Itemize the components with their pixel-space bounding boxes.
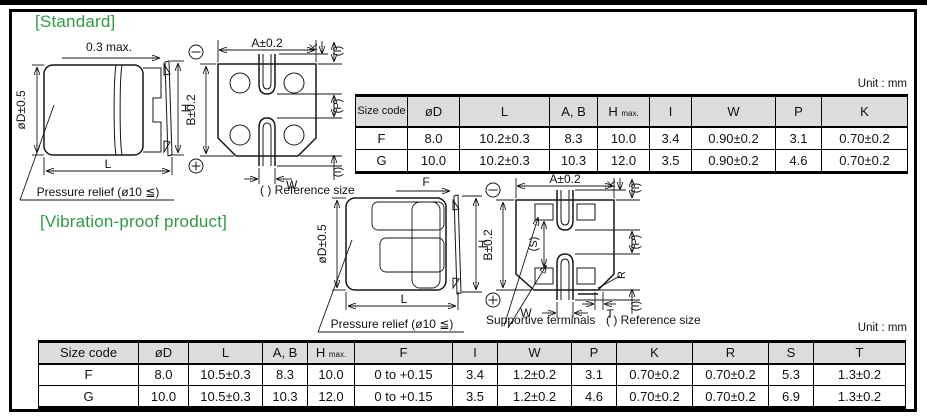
dim-label-p: (P) xyxy=(332,99,344,114)
hmax-main: H xyxy=(608,104,617,119)
col-header-t: T xyxy=(814,342,906,364)
cell: 0 to +0.15 xyxy=(355,364,453,386)
negative-polarity-icon xyxy=(189,45,203,59)
cell: 8.3 xyxy=(550,127,598,150)
cell: 0.90±0.2 xyxy=(692,150,776,173)
cell: F xyxy=(356,127,408,150)
cell: 10.0 xyxy=(139,386,189,408)
dim-a: A±0.2 xyxy=(516,172,614,198)
cell: 1.3±0.2 xyxy=(814,386,906,408)
cell: 0.70±0.2 xyxy=(693,386,769,408)
cell: 4.6 xyxy=(776,150,822,173)
dim-label-k: K xyxy=(308,43,320,51)
supportive-terminals-label: Supportive terminals xyxy=(486,313,595,327)
cell: 8.3 xyxy=(263,364,308,386)
dim-label-length: L xyxy=(401,292,408,306)
table-row: F 8.0 10.5±0.3 8.3 10.0 0 to +0.15 3.4 1… xyxy=(39,364,906,386)
bottom-terminal xyxy=(535,254,598,300)
cell: 3.5 xyxy=(650,150,692,173)
standard-dimension-table: Size code øD L A, B H max. I W P K F 8.0… xyxy=(355,94,908,174)
cell: 12.0 xyxy=(308,386,355,408)
col-header-s: S xyxy=(769,342,814,364)
col-header-k: K xyxy=(617,342,693,364)
dim-k: K xyxy=(575,178,626,190)
hmax-main: H xyxy=(316,345,325,360)
cell: 0.70±0.2 xyxy=(822,150,908,173)
table-header-row: Size code øD L A, B H max. I W P K xyxy=(356,96,908,127)
col-header-diameter: øD xyxy=(408,96,460,127)
dim-label-length: L xyxy=(105,157,112,171)
col-header-l: L xyxy=(189,342,263,364)
cell: 3.1 xyxy=(776,127,822,150)
cell: 0.70±0.2 xyxy=(617,364,693,386)
cell: 3.4 xyxy=(453,364,498,386)
pressure-relief-label: Pressure relief (ø10 ≦) xyxy=(331,317,454,331)
cell: 8.0 xyxy=(408,127,460,150)
col-header-hmax: H max. xyxy=(308,342,355,364)
dim-p: (P) xyxy=(575,230,642,254)
col-header-i: I xyxy=(453,342,498,364)
col-header-r: R xyxy=(693,342,769,364)
cell: 0.70±0.2 xyxy=(617,386,693,408)
dim-p: (P) xyxy=(277,94,344,118)
col-header-w: W xyxy=(692,96,776,127)
unit-label-vibration: Unit : mm xyxy=(812,322,907,334)
dim-label-i-bottom: (I) xyxy=(332,167,344,177)
col-header-ab: A, B xyxy=(550,96,598,127)
col-header-ab: A, B xyxy=(263,342,308,364)
table-row: G 10.0 10.2±0.3 10.3 12.0 3.5 0.90±0.2 4… xyxy=(356,150,908,173)
cell: 12.0 xyxy=(598,150,650,173)
cell: 0.70±0.2 xyxy=(822,127,908,150)
negative-polarity-icon xyxy=(486,183,500,197)
col-header-k: K xyxy=(822,96,908,127)
cell: 3.4 xyxy=(650,127,692,150)
hmax-sub: max. xyxy=(621,109,638,118)
dim-diameter: øD±0.5 xyxy=(14,65,44,155)
cell: 10.3 xyxy=(550,150,598,173)
col-header-diameter: øD xyxy=(139,342,189,364)
standard-bottom-view-drawing: A±0.2 K (I) (P) (I) W xyxy=(182,38,347,196)
cell: 3.5 xyxy=(453,386,498,408)
vibration-dimension-table: Size code øD L A, B H max. F I W P K R S… xyxy=(38,340,906,409)
pressure-relief-label: Pressure relief (ø10 ≦) xyxy=(37,185,160,199)
dim-label-i-bottom: (I) xyxy=(630,301,642,311)
dim-label-p: (P) xyxy=(630,235,642,250)
capacitor-body-side xyxy=(44,61,172,156)
col-header-p: P xyxy=(776,96,822,127)
dim-length: L xyxy=(346,292,458,310)
positive-polarity-icon xyxy=(486,293,500,307)
cell: 3.1 xyxy=(572,364,617,386)
seat-plate-outline xyxy=(218,64,316,156)
dim-f: F xyxy=(396,175,449,191)
dim-label-a: A±0.2 xyxy=(251,36,283,50)
cell: 10.0 xyxy=(598,127,650,150)
dim-i-bottom: (I) xyxy=(277,156,344,180)
dim-label-i-top: (I) xyxy=(332,46,344,56)
col-header-hmax: H max. xyxy=(598,96,650,127)
dim-0-3-max: 0.3 max. xyxy=(62,40,159,58)
cell: 5.3 xyxy=(769,364,814,386)
cell: 0.90±0.2 xyxy=(692,127,776,150)
reference-size-note-vibration: ( ) Reference size xyxy=(606,313,701,327)
dim-label-a: A±0.2 xyxy=(549,172,581,186)
dim-label-b: B±0.2 xyxy=(481,229,495,261)
pressure-relief-callout: Pressure relief (ø10 ≦) xyxy=(318,240,464,332)
capacitor-body-side xyxy=(346,195,461,294)
dim-s: (S) xyxy=(528,222,544,266)
positive-polarity-icon xyxy=(189,159,203,173)
dim-b: B±0.2 xyxy=(184,64,234,156)
col-header-l: L xyxy=(460,96,550,127)
col-header-i: I xyxy=(650,96,692,127)
cell: 8.0 xyxy=(139,364,189,386)
cell: 10.5±0.3 xyxy=(189,386,263,408)
vibration-side-view-drawing: F øD±0.5 H L Pressure relief (ø10 ≦) xyxy=(316,178,494,336)
cell: 0.70±0.2 xyxy=(693,364,769,386)
col-header-f: F xyxy=(355,342,453,364)
cell: 4.6 xyxy=(572,386,617,408)
col-header-size-code: Size code xyxy=(39,342,139,364)
bottom-terminal xyxy=(259,118,275,166)
top-rule xyxy=(0,0,927,5)
dim-k: K xyxy=(279,41,328,54)
cell: 6.9 xyxy=(769,386,814,408)
unit-label-standard: Unit : mm xyxy=(812,78,907,90)
cell: 1.3±0.2 xyxy=(814,364,906,386)
cell: G xyxy=(356,150,408,173)
datasheet-page: [Standard] [Vibration-proof product] Uni… xyxy=(0,0,927,419)
cell: F xyxy=(39,364,139,386)
col-header-size-code: Size code xyxy=(356,96,408,127)
col-header-p: P xyxy=(572,342,617,364)
hmax-sub: max. xyxy=(329,350,346,359)
dim-label-diameter: øD±0.5 xyxy=(315,224,329,264)
table-header-row: Size code øD L A, B H max. F I W P K R S… xyxy=(39,342,906,364)
dim-label-f: F xyxy=(422,175,429,189)
cell: 0 to +0.15 xyxy=(355,386,453,408)
dim-label-k: K xyxy=(606,180,618,188)
dim-label-i-top: (I) xyxy=(630,183,642,193)
top-terminal xyxy=(259,54,275,94)
dim-diameter: øD±0.5 xyxy=(315,198,346,290)
dim-b: B±0.2 xyxy=(481,200,532,290)
cell: 10.0 xyxy=(408,150,460,173)
table-row: F 8.0 10.2±0.3 8.3 10.0 3.4 0.90±0.2 3.1… xyxy=(356,127,908,150)
cell: 10.0 xyxy=(308,364,355,386)
cell: 10.2±0.3 xyxy=(460,150,550,173)
cell: 1.2±0.2 xyxy=(498,364,572,386)
dim-label-b: B±0.2 xyxy=(184,94,198,126)
dim-a: A±0.2 xyxy=(218,36,316,62)
cell: 10.3 xyxy=(263,386,308,408)
col-header-w: W xyxy=(498,342,572,364)
dim-label-03max: 0.3 max. xyxy=(86,40,132,54)
dim-length: L xyxy=(44,157,172,175)
cell: 10.5±0.3 xyxy=(189,364,263,386)
dim-label-r: R xyxy=(616,271,628,279)
cell: 1.2±0.2 xyxy=(498,386,572,408)
table-row: G 10.0 10.5±0.3 10.3 12.0 0 to +0.15 3.5… xyxy=(39,386,906,408)
standard-section-title: [Standard] xyxy=(35,12,115,32)
vibration-section-title: [Vibration-proof product] xyxy=(40,212,227,232)
cell: 10.2±0.3 xyxy=(460,127,550,150)
dim-label-diameter: øD±0.5 xyxy=(14,90,28,130)
standard-side-view-drawing: 0.3 max. øD±0.5 H L Pressure relief (ø10… xyxy=(12,40,197,208)
cell: G xyxy=(39,386,139,408)
dim-r: R xyxy=(598,271,628,288)
